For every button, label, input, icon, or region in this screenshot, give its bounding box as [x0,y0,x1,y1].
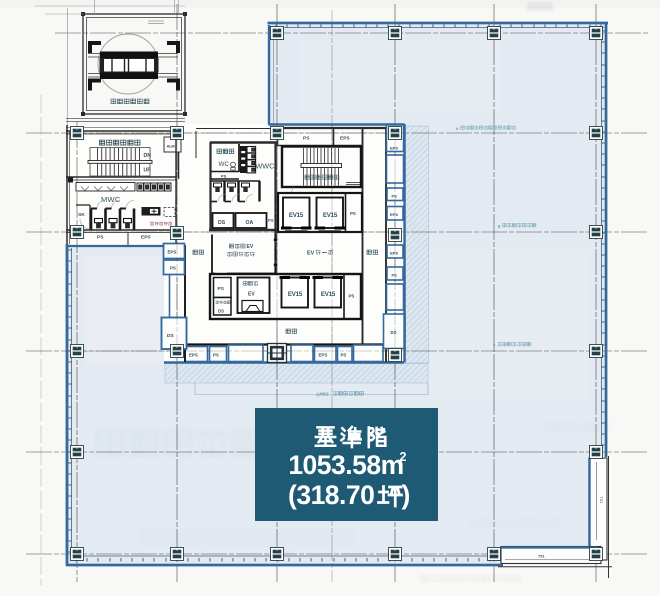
svg-text:EV: EV [247,244,254,250]
svg-text:EV15: EV15 [289,212,304,219]
svg-text:△HD2: △HD2 [315,392,329,397]
svg-text:PS: PS [392,194,398,199]
svg-text:PS: PS [341,353,347,358]
svg-text:PS: PS [221,174,227,179]
svg-text:DS: DS [218,220,226,226]
svg-text:EV: EV [248,292,255,298]
svg-text:DS: DS [391,330,397,335]
svg-text:EV15: EV15 [288,291,303,298]
svg-text:EPS: EPS [390,251,398,256]
svg-text:WC: WC [219,161,230,168]
svg-text:DN: DN [144,153,152,159]
svg-text:EV15: EV15 [321,291,336,298]
svg-text:PS: PS [303,136,310,142]
svg-text:PS: PS [268,218,274,223]
svg-text:EPS: EPS [141,235,151,241]
svg-text:751: 751 [538,554,545,559]
svg-text:TS1: TS1 [599,496,604,504]
svg-text:ALM: ALM [167,144,176,149]
svg-text:EPS: EPS [319,353,328,358]
svg-text:MWC: MWC [101,195,121,204]
svg-text:DS: DS [218,309,224,314]
svg-text:DS: DS [167,333,174,339]
svg-text:PS: PS [349,294,355,299]
svg-text:1053.58m: 1053.58m [288,450,403,480]
svg-text:UP: UP [144,168,152,174]
svg-text:EPS: EPS [189,353,198,358]
svg-text:PS: PS [350,211,356,216]
svg-text:PS: PS [97,235,104,241]
svg-text:EPS: EPS [390,212,398,217]
svg-text:EPS: EPS [168,250,177,255]
svg-text:(318.70: (318.70 [288,480,374,510]
svg-text:OA: OA [246,220,254,226]
svg-text:PS: PS [218,286,225,292]
svg-text:EV15: EV15 [323,212,338,219]
svg-text:EPS: EPS [340,136,350,142]
svg-text:SK: SK [78,212,85,218]
svg-text:2: 2 [400,450,407,464]
svg-text:PS: PS [170,266,176,271]
svg-text:EPS: EPS [390,146,398,151]
svg-text:PS: PS [213,353,219,358]
svg-text:PS: PS [392,273,398,278]
svg-text:EV: EV [307,251,315,257]
svg-text:WWC: WWC [256,162,275,171]
